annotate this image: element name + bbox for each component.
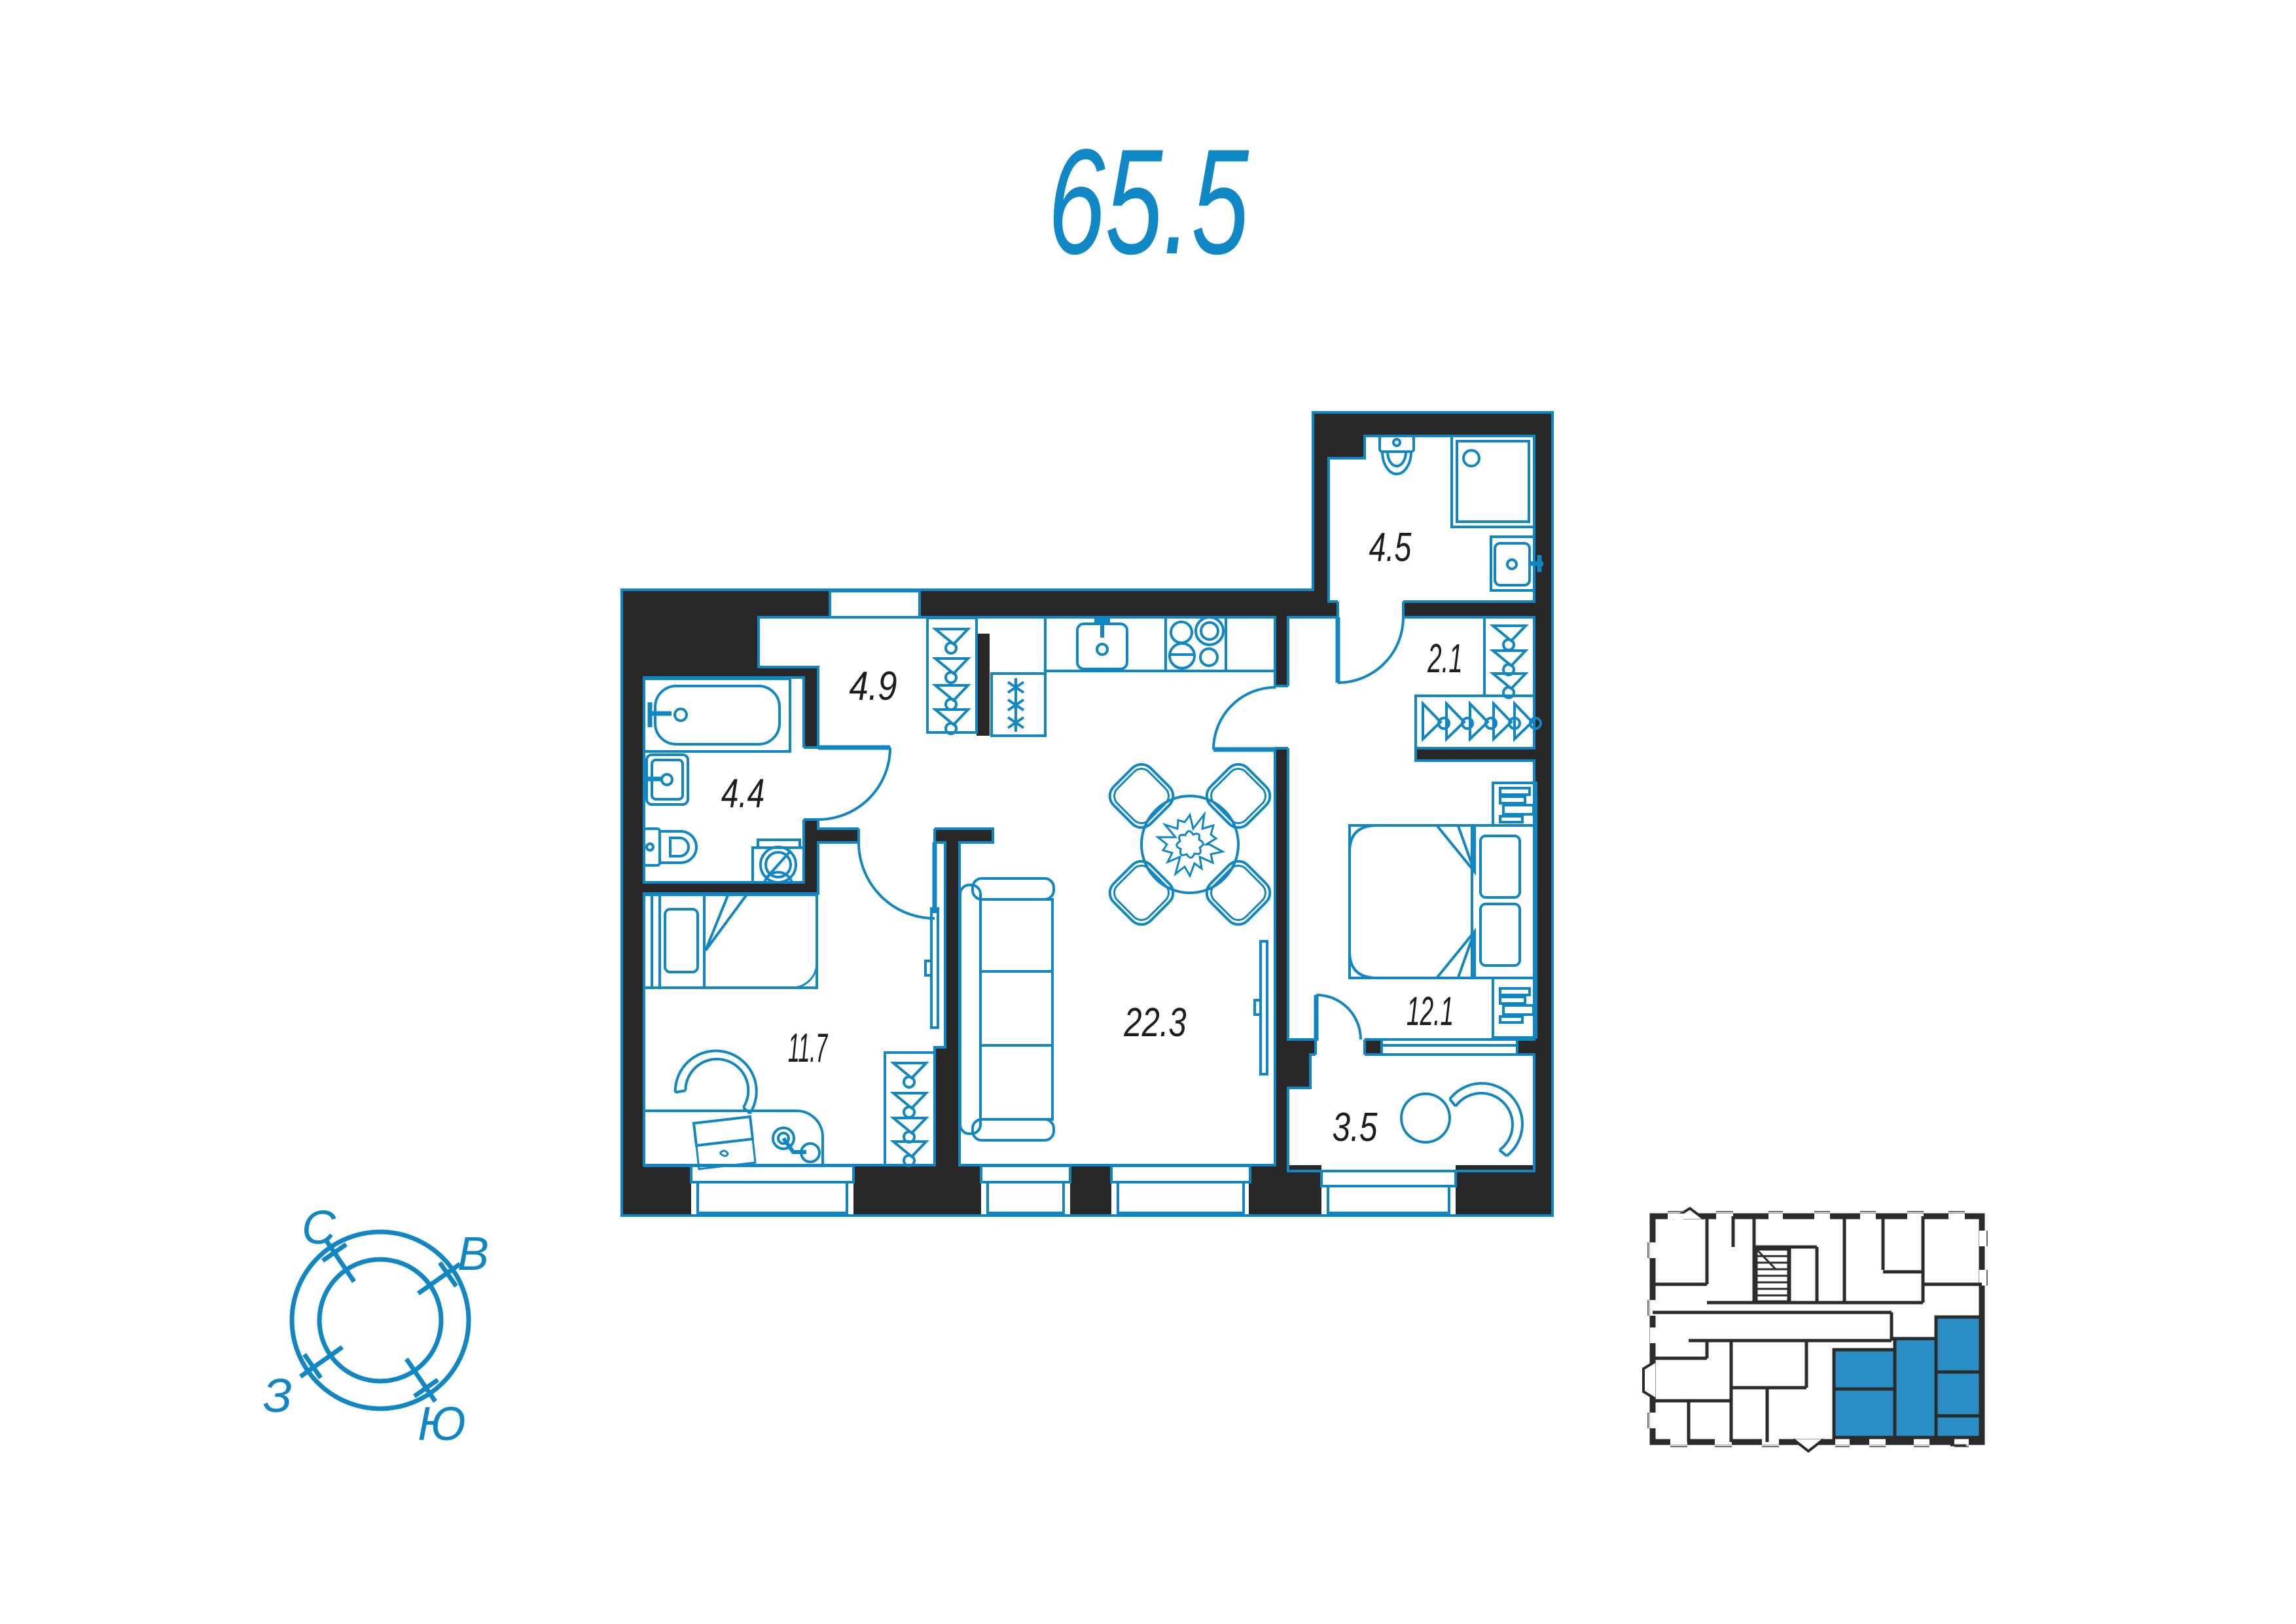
svg-text:4.9: 4.9 (849, 664, 897, 709)
svg-text:3.5: 3.5 (1333, 1104, 1378, 1150)
svg-text:11.7: 11.7 (788, 1026, 828, 1071)
svg-text:С: С (302, 1202, 336, 1254)
svg-text:Ю: Ю (418, 1398, 466, 1451)
svg-text:В: В (457, 1228, 489, 1280)
svg-text:2.1: 2.1 (1427, 636, 1463, 681)
svg-text:65.5: 65.5 (1048, 118, 1249, 285)
svg-text:З: З (263, 1370, 292, 1422)
svg-text:4.5: 4.5 (1369, 524, 1412, 569)
svg-text:12.1: 12.1 (1407, 988, 1454, 1034)
svg-text:22.3: 22.3 (1123, 999, 1186, 1045)
svg-text:4.4: 4.4 (721, 770, 764, 816)
